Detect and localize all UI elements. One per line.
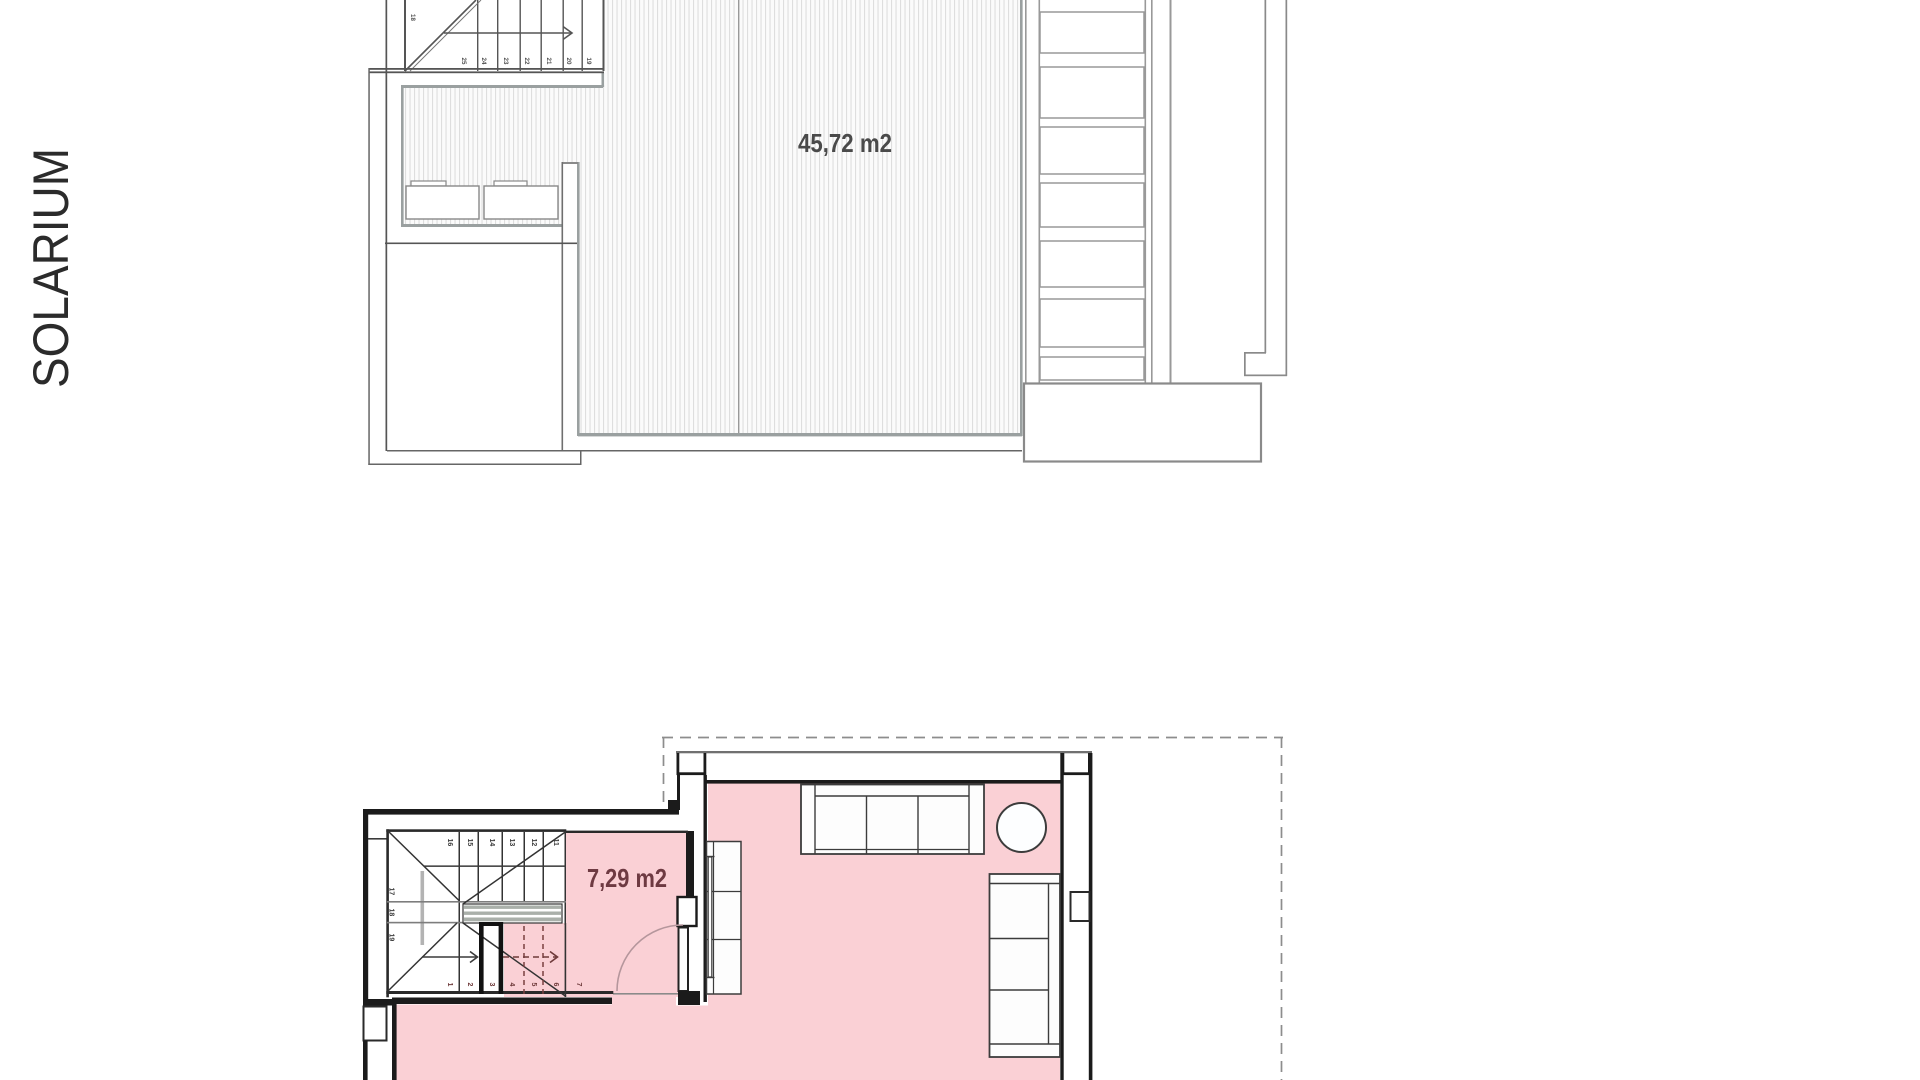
svg-text:6: 6 (552, 983, 559, 987)
svg-text:4: 4 (508, 983, 515, 987)
svg-text:21: 21 (545, 58, 552, 65)
svg-text:5: 5 (530, 983, 537, 987)
svg-text:22: 22 (523, 58, 530, 65)
svg-text:12: 12 (530, 839, 537, 847)
svg-text:25: 25 (460, 58, 467, 65)
svg-text:13: 13 (508, 839, 515, 847)
svg-text:2: 2 (466, 983, 473, 987)
svg-text:16: 16 (446, 839, 453, 847)
svg-text:7,29 m2: 7,29 m2 (587, 863, 667, 893)
svg-text:24: 24 (480, 58, 487, 65)
svg-text:19: 19 (388, 934, 395, 942)
svg-text:19: 19 (585, 58, 592, 65)
svg-text:15: 15 (466, 839, 473, 847)
svg-text:14: 14 (488, 839, 495, 847)
svg-text:SOLARIUM: SOLARIUM (23, 148, 79, 388)
svg-text:18: 18 (388, 909, 395, 917)
svg-text:45,72 m2: 45,72 m2 (798, 128, 892, 158)
svg-text:17: 17 (388, 888, 395, 896)
svg-text:7: 7 (575, 983, 582, 987)
svg-text:20: 20 (565, 58, 572, 65)
svg-text:18: 18 (409, 14, 416, 21)
svg-text:11: 11 (552, 839, 559, 847)
svg-text:1: 1 (446, 983, 453, 987)
svg-text:3: 3 (488, 983, 495, 987)
svg-text:23: 23 (502, 58, 509, 65)
